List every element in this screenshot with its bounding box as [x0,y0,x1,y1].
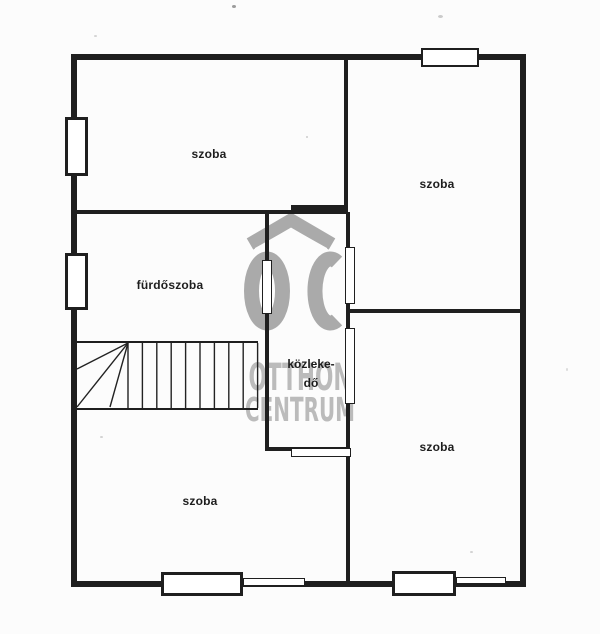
stairs-bottom-edge [76,408,258,410]
sill-bottom-right [456,577,506,584]
wall-mid-horizontal-thick-segment [291,205,348,214]
door-room-top-right [345,247,355,304]
room-label-hallway: közleke- dő [287,355,334,393]
wall-outer-right [520,54,526,587]
walls [0,0,600,634]
stair-treads [128,343,258,408]
door-room-bottom-right [345,328,355,404]
scan-speck [566,368,568,371]
wall-mid-horizontal [74,210,348,214]
window-left-lower [65,253,88,310]
stair-winder-fan [77,343,128,407]
scan-speck [306,136,308,138]
door-bathroom [262,260,272,314]
window-bottom-right [392,571,456,596]
window-left-upper [65,117,88,176]
hallway-label-line1: közleke- [287,357,334,371]
scan-speck [100,436,103,438]
room-label-top-left: szoba [191,147,226,161]
room-label-bottom-left: szoba [182,494,217,508]
otthon-centrum-watermark: OTTHON CENTRUM [0,0,600,634]
scan-speck [94,35,97,37]
window-top [421,48,479,67]
logo-letter-c [315,259,337,323]
door-corridor-bottom [291,448,351,457]
window-bottom-left [161,572,243,596]
scan-speck [470,551,473,553]
room-label-bottom-right: szoba [419,440,454,454]
floorplan-scan: OTTHON CENTRUM [0,0,600,634]
watermark-logo-group: OTTHON CENTRUM [245,220,355,429]
scan-speck [438,15,443,18]
wall-corridor-left [265,212,269,451]
sill-bottom-left [243,578,305,586]
roof-icon [250,220,332,244]
roof-icon-notch [257,233,325,252]
wall-right-rooms-divider [348,309,521,313]
watermark-text-line2: CENTRUM [245,390,355,429]
stairs-top-edge [76,341,258,343]
hallway-label-line2: dő [304,376,319,390]
scan-speck [232,5,236,8]
staircase [0,0,600,634]
wall-top-rooms-divider [344,57,348,213]
room-label-top-right: szoba [419,177,454,191]
room-label-bathroom: fürdőszoba [137,278,204,292]
